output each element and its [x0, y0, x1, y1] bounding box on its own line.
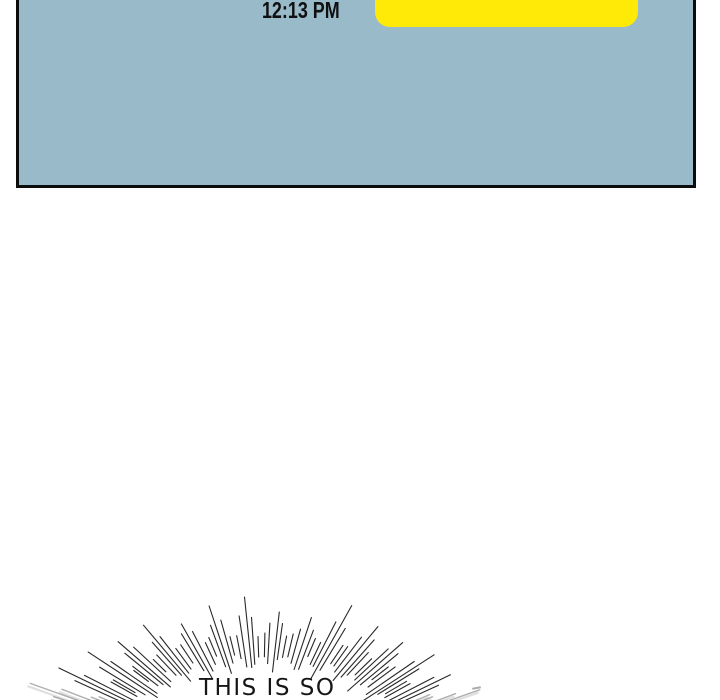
stray-ink-mark — [472, 686, 481, 690]
chat-message-bubble — [375, 0, 638, 27]
caption-text: THIS IS SO — [199, 675, 335, 700]
comic-page: 12:13 PM THIS IS SO — [0, 0, 720, 700]
chat-panel-frame: 12:13 PM — [16, 0, 696, 188]
message-timestamp: 12:13 PM — [262, 0, 340, 22]
